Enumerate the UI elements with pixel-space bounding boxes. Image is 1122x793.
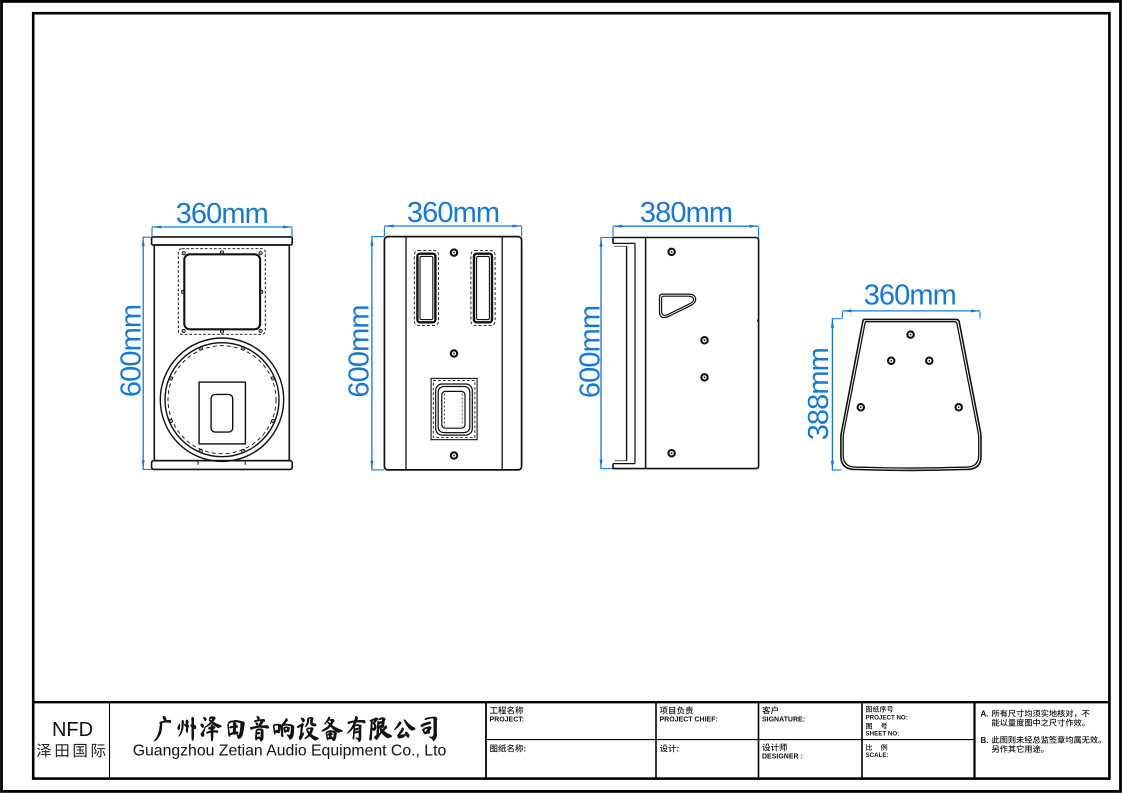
svg-text:380mm: 380mm (640, 197, 732, 229)
svg-text:Guangzhou Zetian Audio Equipme: Guangzhou Zetian Audio Equipment Co., Lt… (133, 743, 447, 760)
svg-text:PROJECT CHIEF:: PROJECT CHIEF: (660, 716, 718, 723)
svg-text:600mm: 600mm (116, 305, 148, 397)
svg-text:SCALE:: SCALE: (866, 752, 889, 759)
svg-text:DESIGNER :: DESIGNER : (762, 753, 803, 760)
svg-text:SIGNATURE:: SIGNATURE: (762, 716, 805, 723)
svg-text:NFD: NFD (52, 719, 93, 741)
svg-text:360mm: 360mm (864, 280, 956, 312)
svg-text:360mm: 360mm (176, 198, 268, 230)
svg-text:PROJECT:: PROJECT: (490, 716, 525, 723)
svg-text:388mm: 388mm (803, 348, 835, 440)
svg-text:B.: B. (981, 736, 989, 745)
svg-text:360mm: 360mm (407, 197, 499, 229)
svg-text:PROJECT NO:: PROJECT NO: (866, 714, 908, 721)
svg-text:600mm: 600mm (574, 306, 606, 398)
svg-text:A.: A. (981, 710, 989, 719)
svg-text:600mm: 600mm (343, 305, 375, 397)
svg-text:SHEET NO:: SHEET NO: (866, 731, 900, 738)
